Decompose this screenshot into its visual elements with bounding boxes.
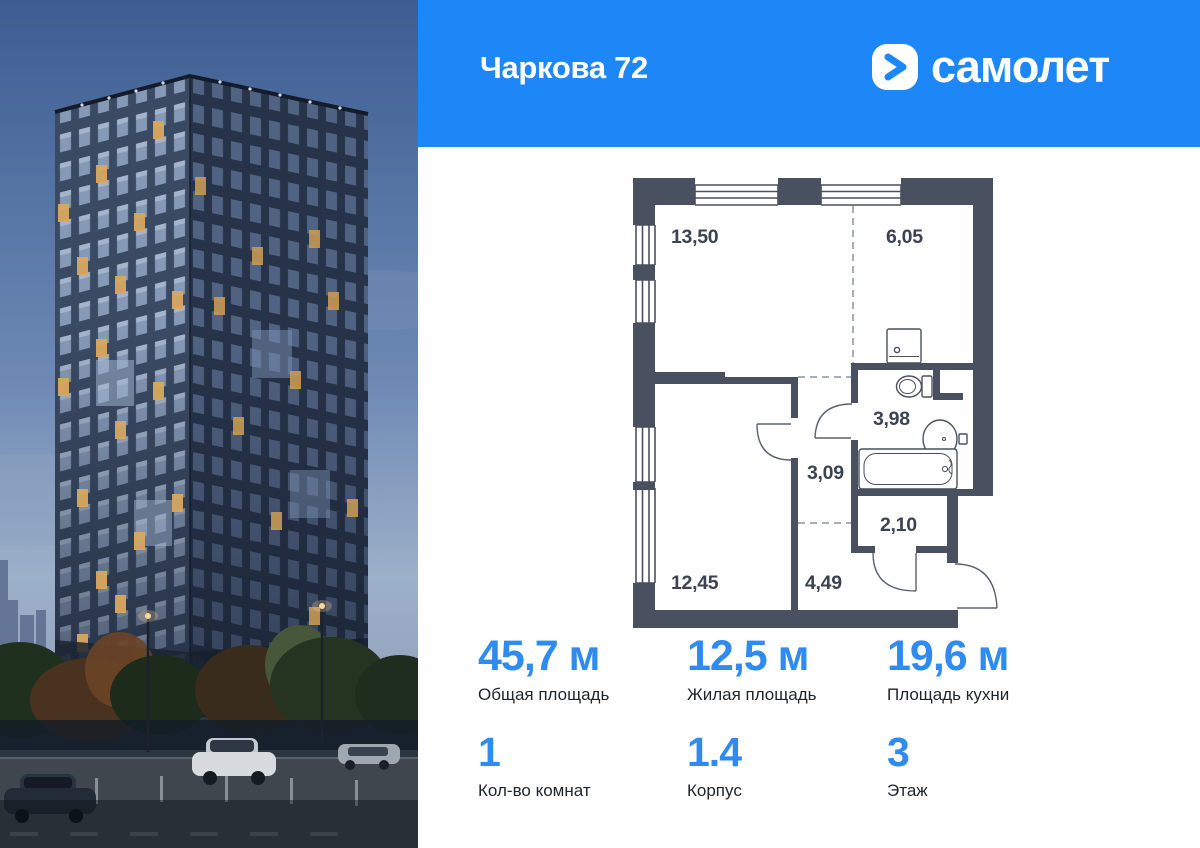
stat-total-area-label: Общая площадь — [478, 686, 688, 704]
bathroom-door-arc — [815, 404, 852, 438]
stat-building-label: Корпус — [687, 782, 897, 800]
entrance-door-arc — [955, 564, 997, 608]
room-label-entry: 4,49 — [805, 572, 842, 594]
room-label-bedroom: 12,45 — [671, 572, 719, 594]
room-label-wardrobe: 2,10 — [880, 514, 917, 536]
stat-kitchen-area-value: 19,6 м — [887, 634, 1097, 678]
project-title: Чаркова 72 — [480, 50, 648, 86]
stat-building: 1.4 Корпус — [687, 730, 897, 800]
stat-floor-value: 3 — [887, 730, 1097, 774]
stat-building-value: 1.4 — [687, 730, 897, 774]
stat-floor-label: Этаж — [887, 782, 1097, 800]
room-label-hallway: 3,09 — [807, 462, 844, 484]
stat-rooms-label: Кол-во комнат — [478, 782, 688, 800]
samolet-logo-icon — [872, 44, 918, 90]
stat-living-area: 12,5 м Жилая площадь — [687, 634, 897, 704]
building-photo — [0, 0, 418, 848]
stat-rooms: 1 Кол-во комнат — [478, 730, 688, 800]
bathtub-icon — [859, 449, 957, 489]
building-photo-art — [0, 0, 418, 848]
brand-logo: самолет — [872, 44, 1110, 90]
room-label-living: 13,50 — [671, 226, 719, 248]
wardrobe-door-arc — [873, 553, 916, 591]
stat-kitchen-area: 19,6 м Площадь кухни — [887, 634, 1097, 704]
stat-total-area: 45,7 м Общая площадь — [478, 634, 688, 704]
stat-living-area-label: Жилая площадь — [687, 686, 897, 704]
stat-floor: 3 Этаж — [887, 730, 1097, 800]
listing-card: Чаркова 72 самолет — [0, 0, 1200, 848]
header-bar: Чаркова 72 самолет — [418, 0, 1200, 147]
vignette — [0, 800, 418, 848]
info-panel: Чаркова 72 самолет — [418, 0, 1200, 848]
stat-kitchen-area-label: Площадь кухни — [887, 686, 1097, 704]
toilet-icon — [897, 376, 933, 397]
brand-name: самолет — [931, 44, 1110, 90]
room-label-kitchen: 6,05 — [886, 226, 923, 248]
stat-rooms-value: 1 — [478, 730, 688, 774]
room-label-bathroom: 3,98 — [873, 408, 910, 430]
bedroom-door-arc — [757, 424, 791, 460]
stat-total-area-value: 45,7 м — [478, 634, 688, 678]
floor-plan: 13,50 6,05 3,98 3,09 2,10 12,45 4,49 — [633, 178, 1008, 628]
stat-living-area-value: 12,5 м — [687, 634, 897, 678]
washing-machine-icon — [887, 329, 921, 363]
